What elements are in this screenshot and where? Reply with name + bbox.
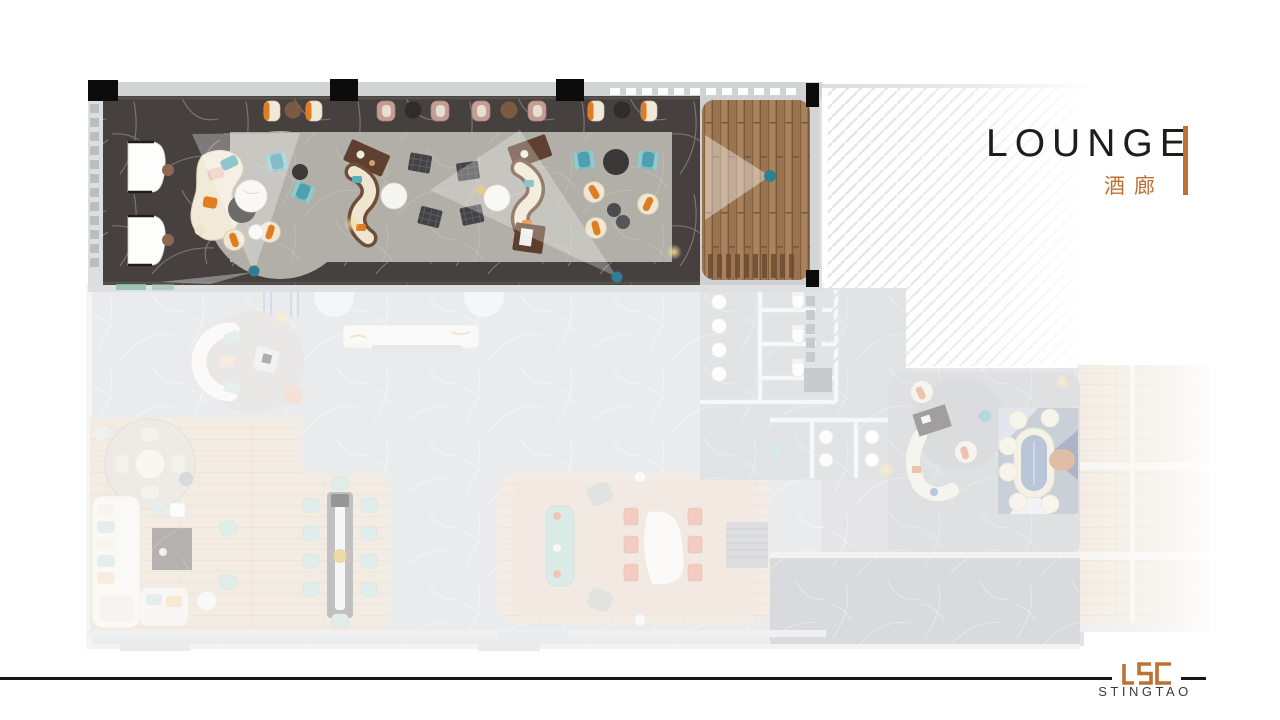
- lounge-area: [88, 79, 822, 292]
- logo-name: STINGTAO: [1082, 684, 1208, 699]
- slide: LOUNGE 酒廊 LSC STINGTAO: [0, 0, 1280, 720]
- title-accent-bar: [1183, 126, 1188, 195]
- page-title-zh: 酒廊: [1096, 170, 1164, 200]
- page-title: LOUNGE: [986, 122, 1193, 166]
- footer-rule-left: [0, 677, 1112, 680]
- floor-plan: [0, 0, 1280, 720]
- footer-rule-right: [1181, 677, 1206, 680]
